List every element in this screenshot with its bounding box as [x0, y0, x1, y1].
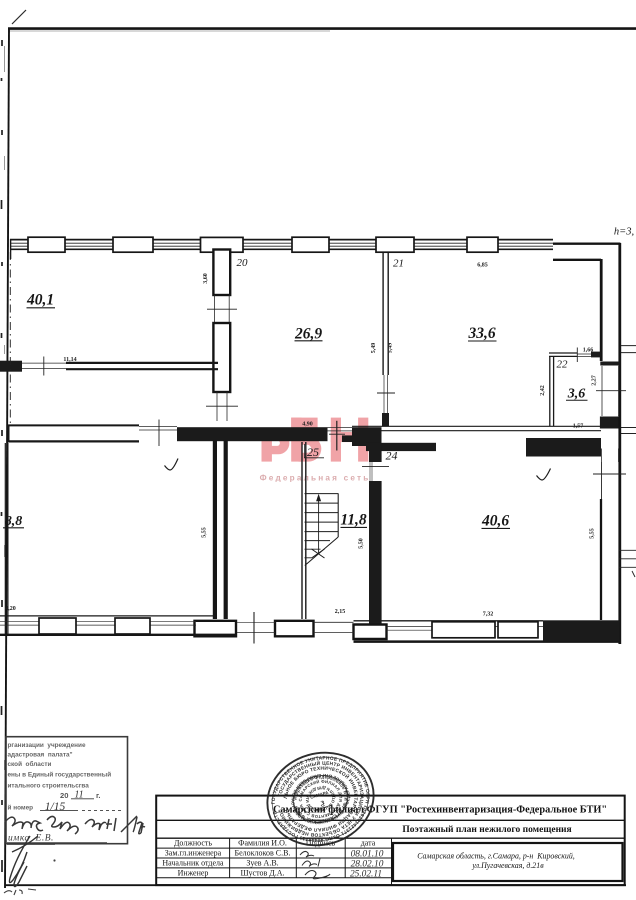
svg-text:5,49: 5,49 — [388, 343, 394, 354]
svg-text:5,55: 5,55 — [202, 527, 208, 538]
svg-text:г.: г. — [96, 791, 101, 800]
svg-text:дата: дата — [361, 839, 376, 848]
svg-text:08.01.10: 08.01.10 — [351, 850, 384, 860]
svg-text:Белоклоков С.В.: Белоклоков С.В. — [235, 849, 291, 858]
svg-text:6,85: 6,85 — [477, 263, 488, 269]
svg-text:28.02.10: 28.02.10 — [351, 860, 384, 870]
svg-text:Зам.гл.инженера: Зам.гл.инженера — [165, 849, 222, 858]
svg-text:5,49: 5,49 — [371, 343, 377, 354]
svg-text:Шустов Д.А.: Шустов Д.А. — [240, 868, 284, 877]
svg-text:Фамилия И.О.: Фамилия И.О. — [238, 839, 287, 848]
svg-text:5,55: 5,55 — [590, 528, 596, 539]
svg-text:3,6: 3,6 — [567, 387, 586, 402]
svg-text:4,90: 4,90 — [302, 422, 313, 428]
svg-text:11,8: 11,8 — [340, 512, 367, 529]
svg-text:адастровая палата": адастровая палата" — [8, 751, 73, 758]
svg-text:20: 20 — [237, 257, 249, 269]
svg-text:4,20: 4,20 — [5, 606, 16, 612]
svg-text:22: 22 — [557, 359, 569, 371]
svg-text:2,27: 2,27 — [592, 375, 598, 386]
svg-text:40,6: 40,6 — [481, 513, 509, 530]
svg-text:33,6: 33,6 — [467, 325, 495, 342]
svg-text:8,8: 8,8 — [5, 514, 23, 529]
svg-text:2,15: 2,15 — [335, 609, 346, 615]
svg-text:Должность: Должность — [174, 839, 212, 848]
svg-text:ул.Пугачевская, д.21в: ул.Пугачевская, д.21в — [471, 861, 544, 870]
svg-text:итального строительсгва: итального строительсгва — [8, 782, 90, 789]
svg-text:1/15: 1/15 — [45, 801, 66, 813]
svg-text:25.02.11: 25.02.11 — [350, 870, 382, 880]
svg-text:Федеральная сеть: Федеральная сеть — [260, 474, 371, 483]
svg-text:Начальник отдела: Начальник отдела — [162, 859, 224, 868]
svg-text:2,42: 2,42 — [540, 385, 546, 396]
svg-text:11,14: 11,14 — [63, 357, 76, 363]
svg-text:21: 21 — [393, 258, 404, 270]
svg-text:20: 20 — [60, 791, 68, 800]
svg-text:й номер: й номер — [8, 804, 34, 812]
svg-text:40,1: 40,1 — [26, 292, 54, 309]
svg-text:25: 25 — [307, 445, 319, 459]
svg-text:1,66: 1,66 — [583, 348, 594, 354]
svg-text:1,57: 1,57 — [573, 424, 584, 430]
svg-text:ены в Единый государственный: ены в Единый государственный — [8, 771, 112, 779]
svg-text:Инженер: Инженер — [178, 868, 209, 877]
svg-text:3,60: 3,60 — [203, 273, 209, 284]
svg-text:ской области: ской области — [8, 760, 52, 768]
svg-text:26,9: 26,9 — [294, 325, 322, 342]
svg-text:рганизации учреждение: рганизации учреждение — [8, 742, 86, 749]
svg-text:11: 11 — [74, 790, 83, 801]
svg-text:7,32: 7,32 — [483, 612, 494, 618]
svg-text:5,50: 5,50 — [359, 538, 365, 549]
svg-text:Зуев А.В.: Зуев А.В. — [246, 859, 278, 868]
svg-text:24: 24 — [386, 449, 398, 463]
svg-text:Самарская область, г.Самара, р: Самарская область, г.Самара, р-н Кировск… — [417, 852, 575, 861]
svg-text:Поэтажный план нежилого помеще: Поэтажный план нежилого помещения — [402, 824, 571, 835]
svg-text:h=3,: h=3, — [614, 227, 634, 238]
